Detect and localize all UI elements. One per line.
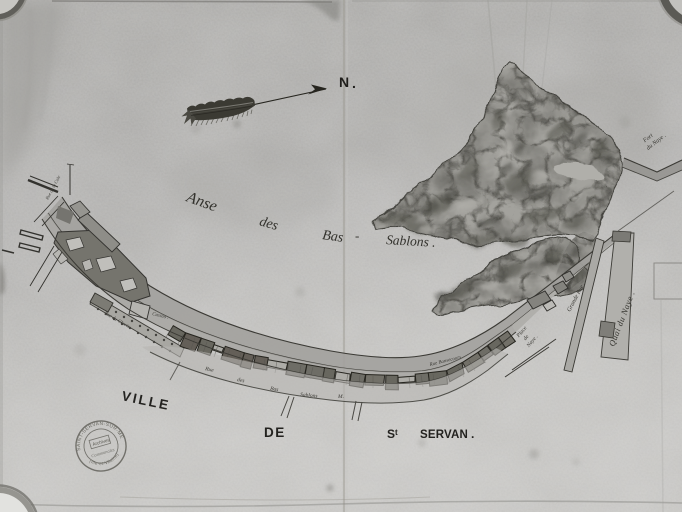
svg-text:Bas: Bas — [270, 386, 279, 393]
svg-text:.: . — [352, 75, 356, 91]
svg-text:.: . — [471, 427, 474, 441]
svg-text:SERVAN: SERVAN — [420, 429, 468, 441]
svg-text:-: - — [355, 228, 359, 243]
svg-text:Sablons .: Sablons . — [386, 232, 436, 250]
svg-text:DE: DE — [264, 425, 286, 440]
svg-text:Bas: Bas — [321, 228, 344, 246]
svg-text:N: N — [339, 74, 349, 90]
svg-text:M.: M. — [337, 394, 344, 400]
